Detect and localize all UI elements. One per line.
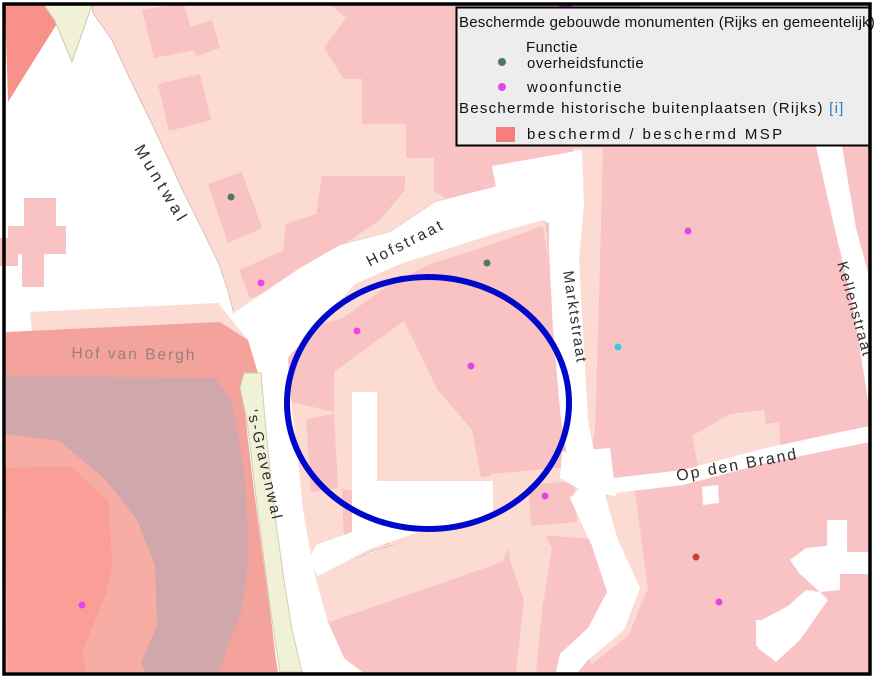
svg-text:Beschermde gebouwde monumenten: Beschermde gebouwde monumenten (Rijks en…	[459, 14, 875, 31]
svg-text:Beschermde historische buitenp: Beschermde historische buitenplaatsen (R…	[459, 100, 845, 117]
svg-text:overheidsfunctie: overheidsfunctie	[527, 55, 644, 72]
svg-text:woonfunctie: woonfunctie	[526, 79, 623, 96]
svg-text:Functie: Functie	[526, 39, 578, 56]
svg-text:Hof van Bergh: Hof van Bergh	[71, 345, 196, 364]
svg-text:beschermd / beschermd MSP: beschermd / beschermd MSP	[527, 126, 785, 143]
